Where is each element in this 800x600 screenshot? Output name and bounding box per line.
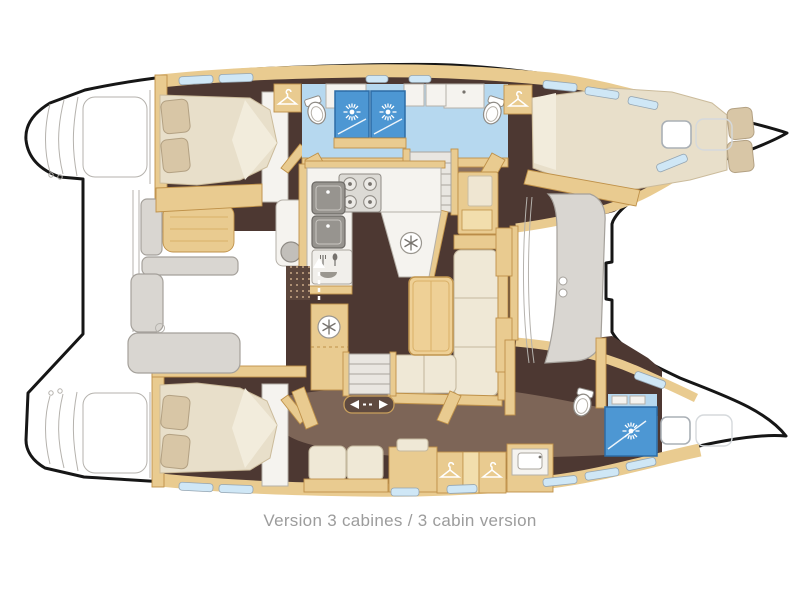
cockpit-bench-corner: [131, 274, 163, 332]
cockpit-bench-aft: [128, 333, 240, 373]
cup-holder: [559, 277, 567, 285]
washbasin-counter: [444, 84, 484, 108]
pillow: [160, 434, 190, 470]
sliding-door-arrows-icon: [344, 396, 394, 413]
shelf: [426, 84, 446, 106]
stove-burner-icon: [364, 178, 377, 191]
sofa-cushions: [454, 250, 498, 396]
cup-holder: [559, 289, 567, 297]
wardrobe: [274, 84, 301, 112]
deck-hatch: [661, 417, 690, 444]
galley-sink: [312, 216, 345, 248]
fridge-top-loading: [401, 233, 422, 254]
shower-cabin: [371, 91, 405, 138]
floor-plan-page: Version 3 cabines / 3 cabin version: [0, 0, 800, 600]
shelf: [404, 84, 424, 106]
saloon-table: [409, 277, 453, 355]
spoon-icon: [333, 253, 338, 260]
pillow: [726, 140, 754, 173]
doormat: [286, 266, 310, 300]
shower-cabin: [335, 91, 369, 138]
cockpit-table: [163, 205, 234, 252]
wardrobe: [504, 85, 532, 114]
hull-sofa-cushion: [309, 446, 346, 481]
cabinet: [389, 447, 437, 492]
pillow: [160, 99, 190, 135]
shower-cabin: [605, 407, 657, 456]
wardrobe: [479, 452, 506, 493]
hull-sofa-cushion: [347, 446, 383, 481]
catamaran-floor-plan: [0, 0, 800, 600]
stove-burner-icon: [364, 196, 377, 209]
plan-caption: Version 3 cabines / 3 cabin version: [0, 511, 800, 531]
pillow: [160, 395, 190, 431]
shower-spray-icon: [380, 104, 397, 121]
cockpit-bench-front: [142, 257, 238, 275]
galley-sink: [312, 182, 345, 214]
fridge-cabinet: [311, 304, 348, 390]
pillow: [160, 138, 190, 174]
deck-hatch: [662, 121, 691, 148]
round-sink: [281, 242, 301, 262]
nav-station: [458, 172, 498, 234]
shower-spray-icon: [344, 104, 361, 121]
starboard-companionway-stairs: [343, 352, 396, 413]
